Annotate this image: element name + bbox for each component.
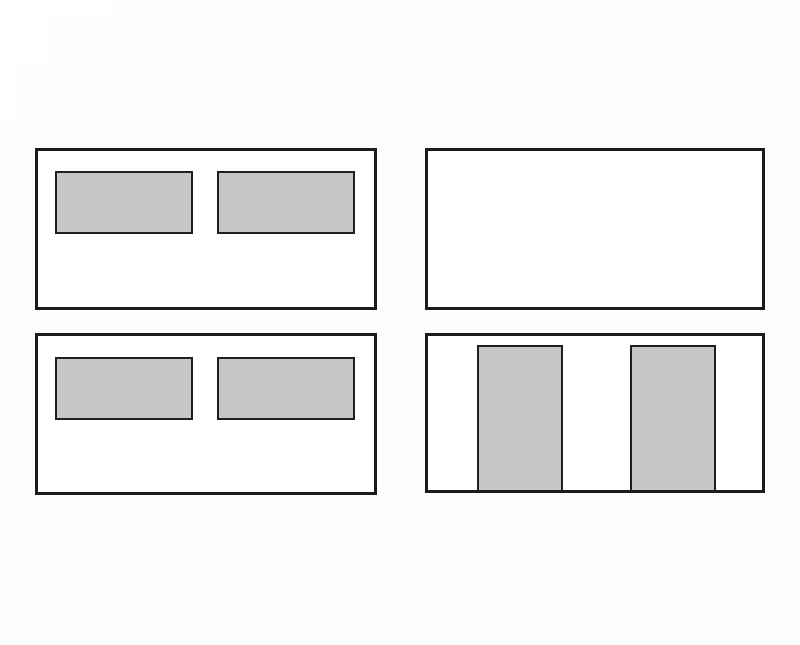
panel-top-right bbox=[425, 148, 765, 310]
panel-bottom-left bbox=[35, 333, 377, 495]
panel-bottom-left-inner-rect-2 bbox=[217, 357, 355, 420]
corner-artifact-strip-left bbox=[0, 0, 15, 123]
panel-bottom-right-tall-rect-2 bbox=[630, 345, 716, 490]
diagram-canvas bbox=[0, 0, 800, 645]
panel-top-left bbox=[35, 148, 377, 310]
panel-bottom-right-tall-rect-1 bbox=[477, 345, 563, 490]
panel-top-left-inner-rect-1 bbox=[55, 171, 193, 234]
panel-bottom-right bbox=[425, 333, 765, 493]
panel-top-left-inner-rect-2 bbox=[217, 171, 355, 234]
panel-bottom-left-inner-rect-1 bbox=[55, 357, 193, 420]
